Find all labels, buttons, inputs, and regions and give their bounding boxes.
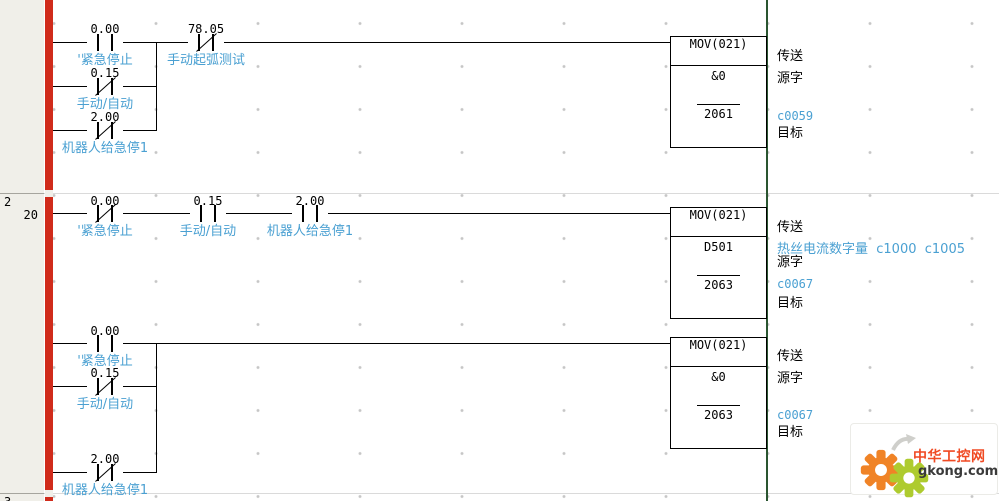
- contact-address: 2.00: [270, 194, 350, 208]
- instruction-name: MOV(021): [671, 208, 766, 237]
- contact-address: 0.15: [65, 66, 145, 80]
- annotation-dest: 目标: [777, 421, 803, 440]
- contact-label: 机器人给急停1: [240, 220, 380, 239]
- instruction-name: MOV(021): [671, 338, 766, 367]
- contact-address: 0.00: [65, 194, 145, 208]
- watermark-logo: 中华工控网 gkong.com: [850, 423, 998, 495]
- mov-instruction-box[interactable]: MOV(021) D501 2063: [670, 207, 767, 319]
- annotation-transfer: 传送: [777, 45, 803, 64]
- rung-wire: [53, 42, 670, 43]
- contact-label: 手动/自动: [35, 393, 175, 412]
- rung-selection-marker: [45, 190, 53, 197]
- left-margin: [0, 0, 44, 501]
- source-operand: D501: [671, 240, 766, 254]
- source-operand: &0: [671, 69, 766, 83]
- rung-number-3[interactable]: 3: [4, 495, 11, 501]
- contact-address: 0.15: [168, 194, 248, 208]
- left-bus-bar: [45, 0, 53, 501]
- watermark-site-name: 中华工控网: [913, 446, 986, 466]
- contact-address: 0.00: [65, 324, 145, 338]
- dest-operand: 2061: [697, 104, 740, 121]
- contact-address: 2.00: [65, 110, 145, 124]
- instruction-name: MOV(021): [671, 37, 766, 66]
- rung-wire: [53, 213, 670, 214]
- rung-wire: [53, 343, 670, 344]
- annotation-transfer: 传送: [777, 345, 803, 364]
- rung-step-20: 20: [0, 208, 38, 222]
- contact-address: 78.05: [166, 22, 246, 36]
- annotation-dest-comment: c0059: [777, 109, 813, 123]
- annotation-source: 源字: [777, 367, 803, 386]
- dest-operand: 2063: [697, 275, 740, 292]
- contact-address: 0.15: [65, 366, 145, 380]
- annotation-dest-comment: c0067: [777, 277, 813, 291]
- contact-label: 手动起弧测试: [136, 49, 276, 68]
- rung-divider: [0, 193, 44, 194]
- rung-number-2[interactable]: 2: [4, 195, 11, 209]
- source-operand: &0: [671, 370, 766, 384]
- mov-instruction-box[interactable]: MOV(021) &0 2063: [670, 337, 767, 449]
- dest-operand: 2063: [697, 405, 740, 422]
- contact-address: 2.00: [65, 452, 145, 466]
- contact-label: 机器人给急停1: [35, 137, 175, 156]
- watermark-site-url: gkong.com: [918, 464, 998, 479]
- annotation-source: 源字: [777, 251, 803, 270]
- contact-label: 机器人给急停1: [35, 479, 175, 498]
- annotation-dest-comment: c0067: [777, 408, 813, 422]
- annotation-transfer: 传送: [777, 216, 803, 235]
- mov-instruction-box[interactable]: MOV(021) &0 2061: [670, 36, 767, 148]
- annotation-dest: 目标: [777, 122, 803, 141]
- annotation-source: 源字: [777, 67, 803, 86]
- ladder-editor-window: 2 20 3 0.00 '紧急停止 78.05 手动起弧测试 0.15 手动/自…: [0, 0, 999, 501]
- annotation-source-comment: 热丝电流数字量 c1000 c1005: [777, 238, 965, 257]
- annotation-dest: 目标: [777, 292, 803, 311]
- contact-address: 0.00: [65, 22, 145, 36]
